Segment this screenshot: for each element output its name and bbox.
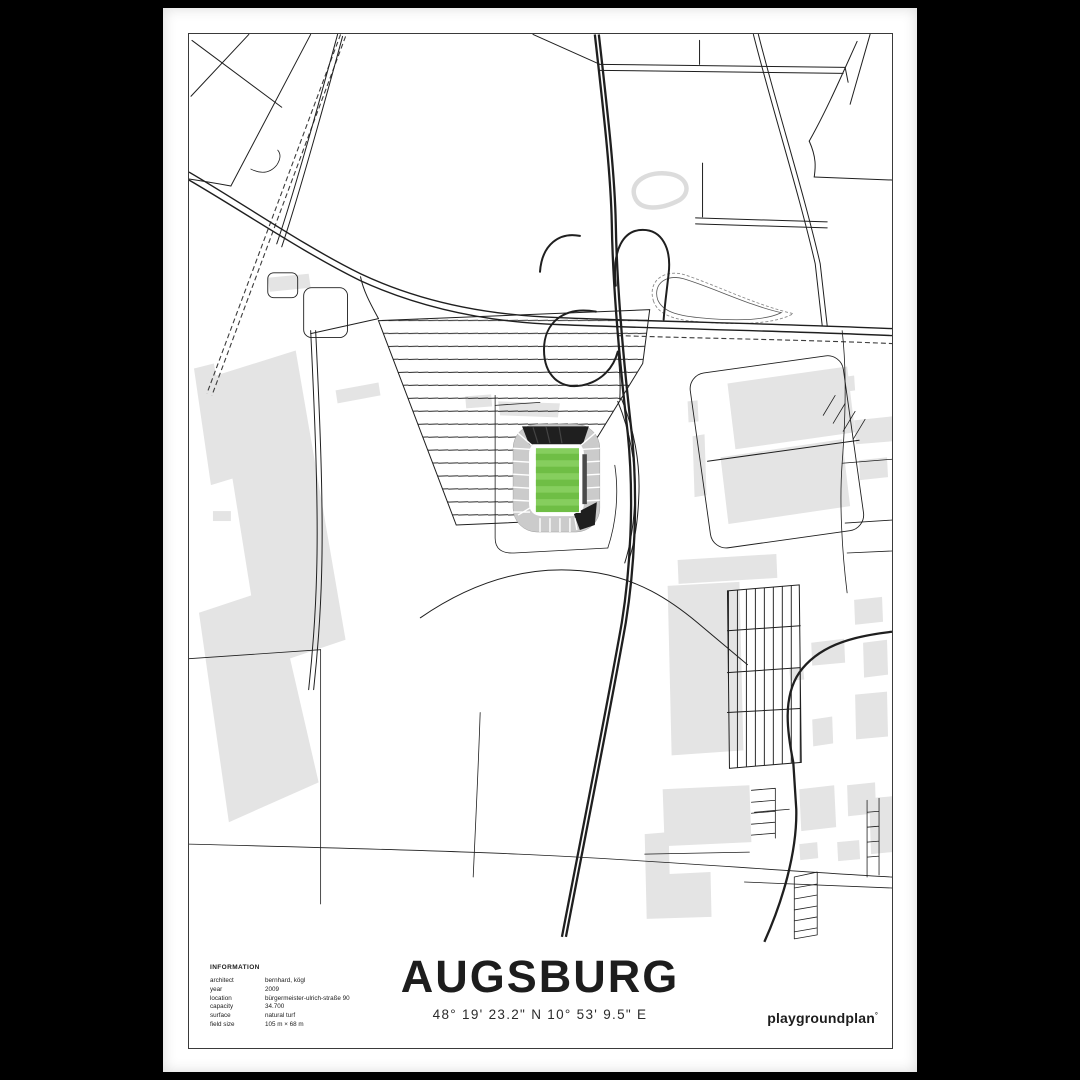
info-row-field-size: field size 105 m × 68 m (210, 1021, 350, 1030)
pond (634, 173, 687, 207)
brand-logo: playgroundplan° (767, 1010, 878, 1026)
poster: INFORMATION architect bernhard, kögl yea… (163, 8, 917, 1072)
brand-name: playgroundplan (767, 1010, 875, 1026)
brand-mark: ° (875, 1012, 878, 1019)
railway (207, 34, 346, 395)
stadium-map (189, 34, 892, 1048)
stadium (513, 424, 600, 532)
map-frame (188, 33, 893, 1049)
stand-roof-bar (582, 454, 586, 504)
poster-title: AUGSBURG (163, 954, 917, 999)
info-value: 105 m × 68 m (265, 1021, 304, 1030)
info-label: field size (210, 1021, 265, 1030)
